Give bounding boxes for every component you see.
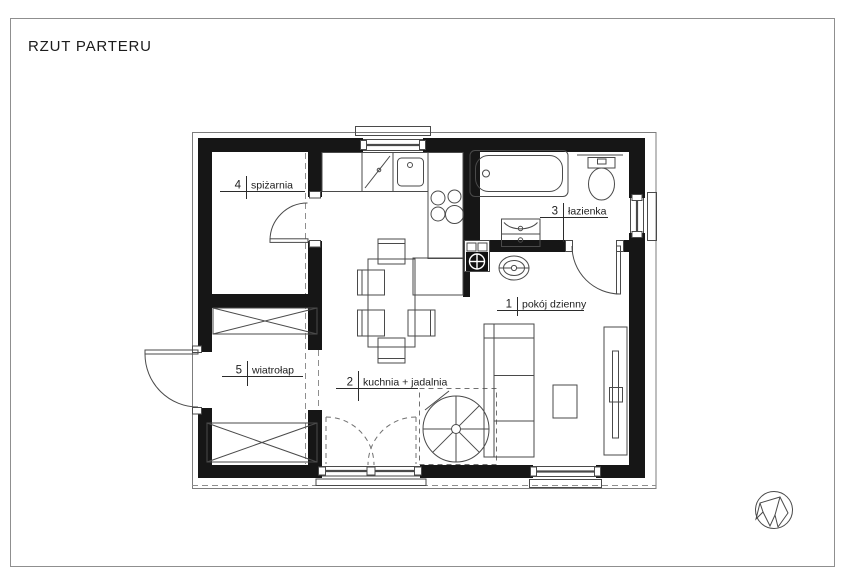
window-top	[356, 127, 431, 151]
room-label-2: 2 kuchnia + jadalnia	[336, 371, 448, 401]
french-door	[316, 417, 426, 486]
room-label-1: 1 pokój dzienny	[497, 297, 587, 316]
entry-door	[145, 346, 202, 414]
pantry-door	[270, 192, 321, 248]
room-3-name: łazienka	[568, 206, 607, 218]
oval-table	[499, 256, 529, 280]
room-4-name: spiżarnia	[251, 180, 293, 192]
kitchen-counter	[322, 153, 463, 296]
room-label-3: 3 łazienka	[540, 203, 608, 242]
stove-chimney	[465, 241, 490, 272]
room-1-name: pokój dzienny	[522, 299, 587, 311]
room-4-number: 4	[235, 180, 242, 192]
tv-cabinet	[604, 327, 627, 455]
coffee-table	[553, 385, 577, 418]
room-1-number: 1	[506, 299, 512, 311]
bathtub	[470, 151, 568, 197]
sofa	[484, 324, 534, 457]
bathroom-door	[566, 241, 624, 295]
floor-plan-page: { "title": "RZUT PARTERU", "plan": { "ro…	[0, 0, 845, 585]
cooktop	[431, 190, 464, 224]
room-3-number: 3	[552, 206, 558, 218]
spiral-staircase	[420, 389, 497, 465]
room-5-name: wiatrołap	[251, 365, 294, 377]
wardrobe-bottom	[207, 423, 317, 462]
room-5-number: 5	[236, 365, 242, 377]
studio-logo-icon	[756, 492, 793, 529]
room-2-name: kuchnia + jadalnia	[363, 377, 448, 389]
room-label-4: 4 spiżarnia	[220, 176, 305, 199]
room-2-number: 2	[347, 377, 353, 389]
window-bottom	[530, 467, 602, 488]
room-label-5: 5 wiatrołap	[222, 361, 303, 386]
toilet	[577, 155, 623, 200]
floor-plan-canvas: 1 pokój dzienny 2 kuchnia + jadalnia 3 ł…	[0, 0, 845, 585]
wardrobe-top	[213, 308, 317, 334]
